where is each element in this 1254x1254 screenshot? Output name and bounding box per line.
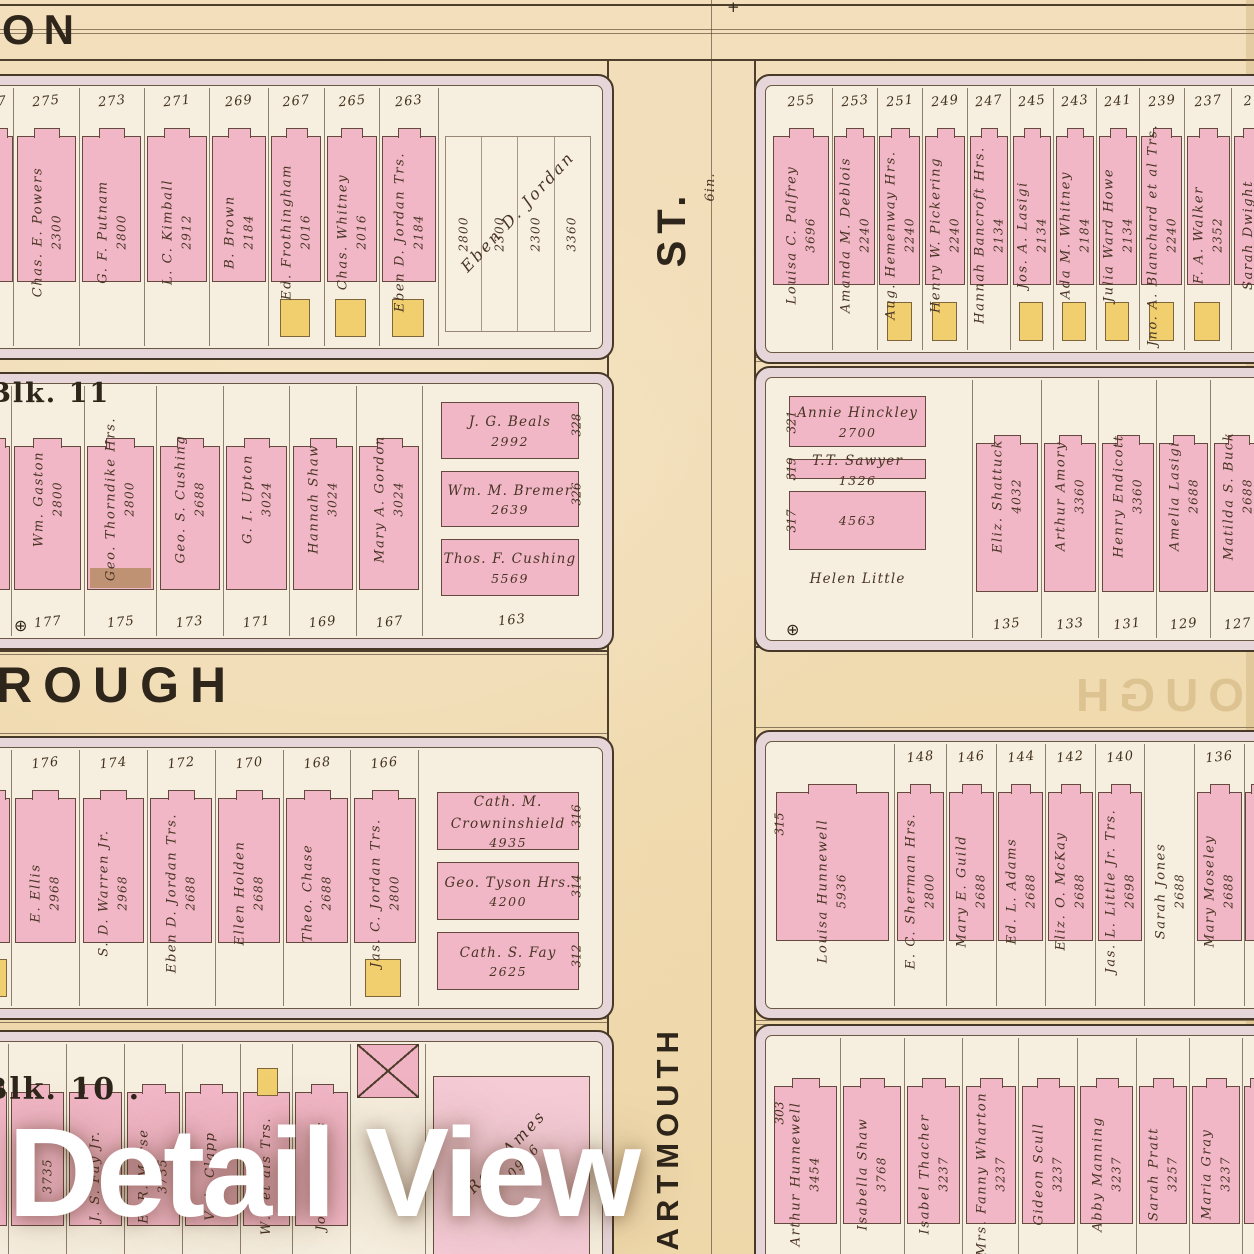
- lot-area-value: 4563: [839, 513, 877, 528]
- parcel: 265Chas. Whitney2016: [325, 88, 381, 346]
- lot-area-value: 2912: [179, 179, 196, 285]
- bay-window: [1153, 1078, 1174, 1088]
- street-edge-line: [754, 727, 1254, 728]
- parcel: 170Ellen Holden2688: [216, 750, 284, 1006]
- lot-label: 4563: [779, 487, 936, 554]
- lot-owner-name: Julia Ward Howe: [1099, 168, 1119, 302]
- parcel: 271L. C. Kimball2912: [145, 88, 210, 346]
- parcel: 169Hannah Shaw3024: [290, 386, 356, 636]
- parcel: 144Ed. L. Adams2688: [997, 744, 1047, 1006]
- lot-area-value: 2968: [47, 864, 64, 923]
- lot-area-value: 2240: [1164, 123, 1181, 346]
- parcel-row: 303Arthur Hunnewell3454Isabella Shaw3768…: [771, 1038, 1254, 1254]
- lot-owner-name: Jos. A. Lasigi: [1014, 181, 1034, 289]
- lot-street-number: 253: [832, 92, 878, 112]
- lot-owner-name: B. Brown: [221, 196, 241, 270]
- plan-parcel-number: 303: [772, 1101, 786, 1124]
- parcel: 173Geo. S. Cushing2688: [157, 386, 223, 636]
- lot-street-number: 169: [290, 612, 357, 634]
- parcel: 133Arthur Amory3360: [1042, 380, 1099, 638]
- building-footprint: [0, 1092, 7, 1226]
- parcel-row: 255Louisa C. Palfrey3696253Amanda M. Deb…: [771, 88, 1254, 350]
- plan-parcel-number: 315: [772, 813, 786, 836]
- lot-owner-name: Eben D. Jordan Trs.: [391, 152, 411, 312]
- lot-area-value: 2639: [491, 502, 529, 517]
- lot-owner-name: Mrs. Fanny Wharton: [972, 1091, 992, 1254]
- lot-owner-name: Jas. L. Little Jr. Trs.: [1102, 808, 1122, 973]
- lot-area-value: 3237: [1050, 1122, 1067, 1225]
- lot-label: Abby Manning3237: [1088, 1116, 1125, 1231]
- lot-label: 3360: [564, 216, 581, 251]
- corner-parcel: Cath. M. Crowninshield4935316Geo. Tyson …: [419, 750, 597, 1006]
- lot-street-number: 146: [946, 748, 996, 768]
- lot-owner-name: Jno. A. Blanchard et al Trs.: [1143, 123, 1163, 346]
- lot-street-number: 237: [1184, 92, 1232, 112]
- parcel: 263Eben D. Jordan Trs.2184: [380, 88, 439, 346]
- lot-area-value: 5569: [491, 571, 529, 586]
- lot-area-value: 2800: [922, 813, 939, 969]
- lot-street-number: 167: [356, 612, 423, 634]
- lot-label: Theo. Chase2688: [298, 844, 335, 943]
- lot-area-value: 2688: [183, 813, 200, 973]
- street-edge-line: [0, 654, 608, 655]
- lot-owner-name: Eben D. Jordan Trs.: [163, 813, 183, 973]
- parcel: 269B. Brown2184: [210, 88, 269, 346]
- lot-label: Chas. Whitney2016: [333, 174, 370, 290]
- lot-label: Eliz. Shattuck4032: [989, 439, 1026, 553]
- street-edge-line: [0, 4, 1254, 6]
- street-edge-line: [0, 650, 608, 652]
- bay-window: [200, 1084, 223, 1094]
- watermark-text: Detail View: [8, 1100, 638, 1245]
- lot-owner-name: Hannah Shaw: [304, 444, 324, 554]
- block-interior: 303Arthur Hunnewell3454Isabella Shaw3768…: [765, 1035, 1254, 1254]
- lot-label: Amelia Lasigi2688: [1165, 441, 1202, 551]
- bay-window: [32, 790, 59, 800]
- lot-street-number: 175: [84, 611, 157, 633]
- lot-owner-name: E. Ellis: [27, 864, 47, 923]
- parcel: 315Louisa Hunnewell5936: [771, 744, 895, 1006]
- parcel: 7: [0, 88, 14, 346]
- bay-window: [228, 128, 252, 138]
- parcel-row: Annie Hinckley2700321T.T. Sawyer13263194…: [771, 380, 1254, 638]
- bay-window: [164, 128, 190, 138]
- lot-street-number: 255: [770, 91, 832, 112]
- lot-owner-name: Ed. Frothingham: [278, 164, 298, 300]
- parcel: 243Ada M. Whitney2184: [1054, 88, 1097, 350]
- lot-street-number: 247: [967, 92, 1010, 111]
- lot-label: Sarah Pratt3257: [1144, 1127, 1181, 1221]
- bay-window: [1024, 128, 1041, 138]
- lot-owner-name: Louisa Hunnewell: [814, 819, 834, 963]
- lot-area-value: 3360: [564, 216, 581, 251]
- parcel: [1243, 1038, 1254, 1254]
- lot-area-value: 2240: [856, 157, 873, 313]
- lot-owner-name: Louisa C. Palfrey: [783, 165, 803, 304]
- lot-label: Chas. E. Powers2300: [28, 167, 65, 298]
- parcel: 148E. C. Sherman Hrs.2800: [895, 744, 947, 1006]
- bay-window: [99, 128, 125, 138]
- block-label-11: Blk. 11: [0, 378, 110, 409]
- parcel: 176E. Ellis2968: [12, 750, 80, 1006]
- building-footprint: [0, 798, 10, 943]
- lot-owner-name: Matilda S. Buck: [1220, 432, 1240, 561]
- lot-street-number: 269: [209, 91, 268, 112]
- parcel: 2Sarah Dwight: [1232, 88, 1254, 350]
- bay-window: [1206, 1078, 1227, 1088]
- lot-owner-name: Wm. Gaston: [29, 450, 49, 546]
- lot-owner-name: Geo. Thorndike Hrs.: [102, 416, 122, 580]
- lot-label: Henry Endicott3360: [1109, 434, 1146, 557]
- lot-owner-name: Abby Manning: [1088, 1116, 1108, 1231]
- lot-area-value: 2688: [1185, 441, 1202, 551]
- bay-window: [846, 128, 864, 138]
- parcel: [1245, 744, 1254, 1006]
- lot-label: F. A. Walker2352: [1190, 186, 1227, 284]
- lot-area-value: 3237: [1109, 1116, 1126, 1231]
- plan-parcel-number: 326: [570, 482, 584, 505]
- lot-owner-name: Ellen Holden: [231, 841, 251, 946]
- lot-area-value: 3768: [874, 1117, 891, 1230]
- bay-window: [1199, 128, 1218, 138]
- block-interior: Annie Hinckley2700321T.T. Sawyer13263194…: [765, 377, 1254, 641]
- bay-window: [1210, 784, 1230, 794]
- lot-owner-name: Henry Endicott: [1109, 434, 1129, 557]
- lot-owner-name: Geo. Tyson Hrs.: [444, 873, 571, 895]
- lot-street-number: 127: [1211, 614, 1254, 635]
- lot-label: Annie Hinckley2700: [779, 392, 936, 451]
- lot-label: E. Ellis2968: [27, 864, 64, 923]
- parcel: 177Wm. Gaston2800: [12, 386, 85, 636]
- city-block-row1-east: 255Louisa C. Palfrey3696253Amanda M. Deb…: [754, 74, 1254, 364]
- lot-label: Wm. M. Bremer2639: [431, 467, 589, 532]
- lot-area-value: 2016: [353, 174, 370, 290]
- lot-owner-name: J. G. Beals: [469, 412, 551, 434]
- lot-area-value: 2688: [1171, 842, 1188, 939]
- bay-window: [304, 790, 331, 800]
- lot-area-value: 2698: [1122, 808, 1139, 973]
- lot-label: Isabel Thacher3237: [915, 1113, 952, 1234]
- parcel: 267Ed. Frothingham2016: [269, 88, 325, 346]
- block-interior: 176E. Ellis2968174S. D. Warren Jr.296817…: [0, 747, 603, 1009]
- lot-street-number: 271: [144, 91, 209, 113]
- lot-label: Jno. A. Blanchard et al Trs.2240: [1143, 123, 1180, 346]
- stacked-parcel: Annie Hinckley2700321: [779, 392, 936, 451]
- lot-street-number: 241: [1096, 92, 1139, 111]
- stacked-parcel: 4563317: [779, 487, 936, 554]
- lot-area-value: 2352: [1210, 186, 1227, 284]
- lot-label: Jas. C. Jordan Trs.2800: [366, 819, 403, 969]
- lot-area-value: 2688: [1221, 834, 1238, 947]
- lot-label: Julia Ward Howe2134: [1099, 168, 1136, 302]
- lot-street-number: 144: [996, 748, 1046, 768]
- bay-window: [1111, 784, 1131, 794]
- lot-area-value: 2184: [241, 196, 258, 270]
- lot-area-value: 2800: [122, 416, 139, 580]
- lot-street-number: 174: [79, 753, 147, 775]
- lot-label: Arthur Amory3360: [1052, 441, 1089, 551]
- lot-street-number: 163: [425, 604, 600, 637]
- bay-window: [910, 784, 931, 794]
- parcel: 237F. A. Walker2352: [1185, 88, 1233, 350]
- lot-label: Sarah Jones2688: [1151, 842, 1188, 939]
- alley-line: [0, 1022, 608, 1023]
- lot-street-number: 249: [922, 92, 968, 112]
- parcel: 136Mary Moseley2688: [1195, 744, 1245, 1006]
- rear-structure: [1019, 302, 1043, 341]
- lot-label: Louisa Hunnewell5936: [814, 819, 851, 963]
- bay-window: [937, 128, 955, 138]
- bay-window: [0, 128, 8, 138]
- lot-owner-name: G. F. Putnam: [93, 181, 113, 284]
- bay-window: [168, 790, 195, 800]
- parcel: 247Hannah Bancroft Hrs.2134: [968, 88, 1011, 350]
- lot-area-value: 2134: [991, 146, 1008, 324]
- lot-label: Matilda S. Buck2688: [1220, 432, 1254, 561]
- lot-area-value: 2800: [113, 181, 130, 284]
- survey-cross-icon: +: [727, 0, 740, 16]
- rear-structure: [280, 299, 310, 337]
- lot-area-value: 3696: [803, 165, 820, 304]
- bay-window: [372, 790, 399, 800]
- lot-label: Mrs. Fanny Wharton3237: [972, 1091, 1009, 1254]
- parcel: 127Matilda S. Buck2688: [1211, 380, 1254, 638]
- lot-label: Eliz. O. McKay2688: [1052, 831, 1089, 950]
- lot-label: Sarah Dwight: [1239, 180, 1254, 290]
- lot-area-value: 3257: [1164, 1127, 1181, 1221]
- lot-owner-name: Ada M. Whitney: [1056, 171, 1076, 299]
- rear-structure: [335, 299, 365, 337]
- plan-parcel-number: 317: [784, 509, 798, 532]
- parcel: 239Jno. A. Blanchard et al Trs.2240: [1140, 88, 1185, 350]
- lot-label: Mary E. Guild2688: [953, 834, 990, 947]
- lot-label: Amanda M. Deblois2240: [836, 157, 873, 313]
- bay-window: [1011, 784, 1031, 794]
- lot-area-value: 2134: [1119, 168, 1136, 302]
- city-block-11-west: 177Wm. Gaston2800175Geo. Thorndike Hrs.2…: [0, 372, 614, 650]
- lot-street-number: 265: [324, 91, 380, 112]
- stacked-parcel: Wm. M. Bremer2639326: [431, 467, 589, 532]
- front-structure: [257, 1068, 277, 1096]
- parcel: 275Chas. E. Powers2300: [14, 88, 79, 346]
- lot-owner-name: Cath. S. Fay: [460, 943, 557, 965]
- lot-area-value: 2688: [192, 434, 209, 563]
- building-footprint: [1244, 1086, 1254, 1224]
- lot-owner-name: E. C. Sherman Hrs.: [902, 813, 922, 969]
- lot-area-value: 2688: [251, 841, 268, 946]
- street-label-dartmouth: DARTMOUTH: [640, 996, 696, 1254]
- rear-structure: [1194, 302, 1220, 341]
- bay-window: [789, 128, 814, 138]
- street-edge-line: [0, 59, 1254, 61]
- street-label-ghost-bleed: ROUGH: [1066, 668, 1254, 722]
- lot-area-value: 2300: [48, 167, 65, 298]
- rear-structure: [1105, 302, 1129, 341]
- parcel: 171G. I. Upton3024: [224, 386, 290, 636]
- parcel: 251Aug. Hemenway Hrs.2240: [878, 88, 923, 350]
- street-label-beacon: ON: [2, 6, 83, 54]
- lot-area-value: 2992: [491, 434, 529, 449]
- lot-street-number: 140: [1095, 748, 1145, 768]
- lot-area-value: 2625: [489, 964, 527, 979]
- parcel-row: 315Louisa Hunnewell5936148E. C. Sherman …: [771, 744, 1254, 1006]
- lot-owner-name: G. I. Upton: [238, 454, 258, 544]
- atlas-map-page: 7275Chas. E. Powers2300273G. F. Putnam28…: [0, 0, 1254, 1254]
- lot-label: Isabella Shaw3768: [854, 1117, 891, 1230]
- lot-area-value: 2016: [298, 164, 315, 300]
- bay-window: [792, 1078, 820, 1088]
- lot-area-value: 3237: [935, 1113, 952, 1234]
- benchmark-icon: ⊕: [14, 616, 27, 635]
- lot-label: Arthur Hunnewell3454: [787, 1101, 824, 1246]
- lot-area-value: 4200: [489, 894, 527, 909]
- parcel: 131Henry Endicott3360: [1099, 380, 1156, 638]
- bay-window: [980, 1078, 1002, 1088]
- parcel: Sarah Jones2688: [1145, 744, 1195, 1006]
- lot-area-value: 2240: [902, 150, 919, 319]
- parcel: 175Geo. Thorndike Hrs.2800: [85, 386, 158, 636]
- lot-owner-name: Mary E. Guild: [953, 834, 973, 947]
- bay-window: [33, 438, 62, 448]
- lot-owner-name: Helen Little: [810, 569, 906, 591]
- city-block-row3-east: 315Louisa Hunnewell5936148E. C. Sherman …: [754, 730, 1254, 1020]
- plan-parcel-number: 312: [570, 944, 584, 967]
- street-label-cross-st: ST.: [644, 156, 700, 300]
- lot-area-value: 5936: [834, 819, 851, 963]
- crossed-out-building: [357, 1044, 419, 1098]
- city-block-row3-west: 176E. Ellis2968174S. D. Warren Jr.296817…: [0, 736, 614, 1020]
- lot-street-number: 176: [11, 753, 79, 775]
- lot-street-number: 133: [1041, 614, 1099, 635]
- parcel: 273G. F. Putnam2800: [80, 88, 145, 346]
- lot-label: Thos. F. Cushing5569: [431, 535, 589, 600]
- plan-parcel-number: 319: [784, 458, 798, 481]
- block-interior: 177Wm. Gaston2800175Geo. Thorndike Hrs.2…: [0, 383, 603, 639]
- lot-owner-name: Chas. E. Powers: [28, 167, 48, 298]
- stacked-parcel: Geo. Tyson Hrs.4200314: [427, 858, 589, 924]
- lot-owner-name: S. D. Warren Jr.: [95, 830, 115, 957]
- lot-owner-name: Henry W. Pickering: [927, 157, 947, 313]
- lot-owner-name: Sarah Pratt: [1144, 1127, 1164, 1221]
- lot-label: S. D. Warren Jr.2968: [95, 830, 132, 957]
- stacked-parcel: Helen Little: [779, 558, 936, 602]
- lot-owner-name: Isabella Shaw: [854, 1117, 874, 1230]
- parcel: [0, 386, 12, 636]
- bay-window: [1243, 128, 1254, 138]
- corner-parcel: 2800230023003360Eben D. Jordan: [439, 88, 597, 346]
- lot-street-number: 273: [79, 91, 144, 113]
- lot-label: Eben D. Jordan Trs.2688: [163, 813, 200, 973]
- stacked-parcel: T.T. Sawyer1326319: [779, 455, 936, 483]
- lot-street-number: 243: [1053, 92, 1096, 111]
- lot-label: Hannah Bancroft Hrs.2134: [971, 146, 1008, 324]
- lot-owner-name: Chas. Whitney: [333, 174, 353, 290]
- bay-window: [244, 438, 270, 448]
- lot-area-value: 3024: [325, 444, 342, 554]
- lot-label: Ada M. Whitney2184: [1056, 171, 1093, 299]
- lot-owner-name: Sarah Dwight: [1239, 180, 1254, 290]
- bay-window: [398, 128, 422, 138]
- alley-line: [754, 1020, 1254, 1021]
- lot-area-value: 2688: [1023, 837, 1040, 944]
- lot-area-value: 2688: [1240, 432, 1254, 561]
- lot-label: Ed. L. Adams2688: [1002, 837, 1039, 944]
- stacked-parcel: Cath. M. Crowninshield4935316: [427, 788, 589, 854]
- lot-area-value: 2300: [528, 216, 545, 251]
- parcel: 253Amanda M. Deblois2240: [833, 88, 878, 350]
- bay-window: [34, 128, 60, 138]
- lot-label: Gideon Scull3237: [1030, 1122, 1067, 1225]
- bay-window: [1250, 1078, 1254, 1088]
- bay-window: [1110, 128, 1127, 138]
- lot-owner-name: Arthur Amory: [1052, 441, 1072, 551]
- parcel-row: 177Wm. Gaston2800175Geo. Thorndike Hrs.2…: [0, 386, 597, 636]
- parcel: 303Arthur Hunnewell3454: [771, 1038, 841, 1254]
- lot-street-number: 131: [1099, 614, 1157, 635]
- lot-label: T.T. Sawyer1326: [779, 455, 936, 483]
- parcel: 129Amelia Lasigi2688: [1157, 380, 1212, 638]
- bay-window: [1067, 128, 1084, 138]
- sublot: 2800: [446, 137, 482, 331]
- lot-street-number: 172: [147, 753, 215, 775]
- lot-area-value: 2800: [386, 819, 403, 969]
- parcel: Gideon Scull3237: [1019, 1038, 1078, 1254]
- lot-area-value: 1326: [839, 473, 877, 488]
- pipe-size-note: 6in.: [703, 159, 721, 215]
- lot-area-value: 2800: [49, 450, 66, 546]
- lot-label: G. F. Putnam2800: [93, 181, 130, 284]
- lot-label: Maria Gray3237: [1197, 1128, 1234, 1219]
- lot-street-number: 136: [1194, 748, 1244, 768]
- lot-label: Ed. Frothingham2016: [278, 164, 315, 300]
- parcel: [0, 750, 12, 1006]
- lot-owner-name: Amanda M. Deblois: [836, 157, 856, 313]
- parcel: 146Mary E. Guild2688: [947, 744, 997, 1006]
- lot-owner-name: Eliz. Shattuck: [989, 439, 1009, 553]
- stacked-parcel: Cath. S. Fay2625312: [427, 928, 589, 994]
- lot-area-value: 3237: [1218, 1128, 1235, 1219]
- lot-label: Geo. S. Cushing2688: [172, 434, 209, 563]
- parcel-row: 176E. Ellis2968174S. D. Warren Jr.296817…: [0, 750, 597, 1006]
- parcel: 249Henry W. Pickering2240: [923, 88, 968, 350]
- lot-label: E. C. Sherman Hrs.2800: [902, 813, 939, 969]
- lot-street-number: 135: [973, 614, 1042, 636]
- lot-street-number: 2: [1232, 92, 1254, 110]
- parcel: Mrs. Fanny Wharton3237: [963, 1038, 1019, 1254]
- parcel: 140Jas. L. Little Jr. Trs.2698: [1096, 744, 1146, 1006]
- parcel: Maria Gray3237: [1190, 1038, 1243, 1254]
- lot-street-number: 171: [223, 612, 290, 634]
- bay-window: [1096, 1078, 1119, 1088]
- lot-area-value: 2184: [1077, 171, 1094, 299]
- building-footprint: [0, 446, 10, 591]
- lot-label: Hannah Shaw3024: [304, 444, 341, 554]
- lot-owner-name: Theo. Chase: [298, 844, 318, 943]
- bay-window: [808, 784, 857, 794]
- lot-label: Cath. M. Crowninshield4935: [427, 788, 589, 854]
- parcel: Isabella Shaw3768: [841, 1038, 905, 1254]
- lot-owner-name: Wm. M. Bremer: [448, 481, 573, 503]
- lot-owner-name: L. C. Kimball: [159, 179, 179, 285]
- lot-street-number: 129: [1156, 614, 1211, 635]
- lot-street-number: 166: [351, 753, 419, 775]
- rear-structure: [0, 959, 7, 997]
- parcel: 245Jos. A. Lasigi2134: [1011, 88, 1054, 350]
- lot-label: Louisa C. Palfrey3696: [783, 165, 820, 304]
- lot-label: G. I. Upton3024: [238, 454, 275, 544]
- lot-owner-name: Mary Moseley: [1201, 834, 1221, 947]
- lot-owner-name: Eliz. O. McKay: [1052, 831, 1072, 950]
